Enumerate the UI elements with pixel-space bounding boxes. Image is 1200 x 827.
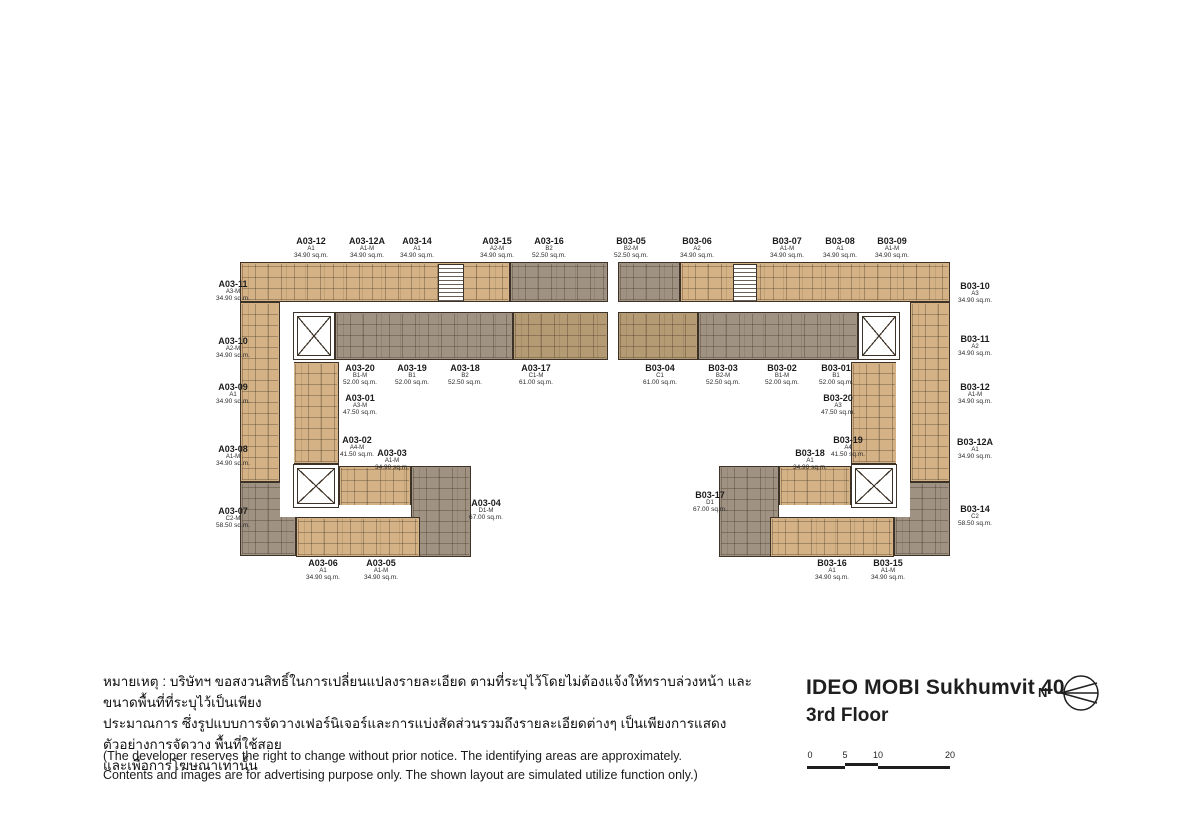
scale-segment (845, 763, 878, 766)
unit-id: A03-14 (400, 236, 434, 246)
unit-area: 34.90 sq.m. (216, 295, 250, 303)
unit-area: 34.90 sq.m. (770, 252, 804, 260)
unit-label-B03-02: B03-02B1-M52.00 sq.m. (765, 363, 799, 387)
unit-label-A03-12: A03-12A134.90 sq.m. (294, 236, 328, 260)
unit-label-B03-07: B03-07A1-M34.90 sq.m. (770, 236, 804, 260)
unit-area: 34.90 sq.m. (871, 574, 905, 582)
unit-label-A03-15: A03-15A2-M34.90 sq.m. (480, 236, 514, 260)
unit-id: B03-05 (614, 236, 648, 246)
unit-label-B03-11: B03-11A234.90 sq.m. (958, 334, 992, 358)
unit-area: 41.50 sq.m. (831, 451, 865, 459)
unit-id: A03-03 (375, 448, 409, 458)
unit-label-B03-01: B03-01B152.00 sq.m. (819, 363, 853, 387)
unit-id: B03-06 (680, 236, 714, 246)
unit-label-B03-04: B03-04C161.00 sq.m. (643, 363, 677, 387)
unit-id: A03-20 (343, 363, 377, 373)
unit-area: 34.90 sq.m. (349, 252, 385, 260)
unit-id: A03-10 (216, 336, 250, 346)
unit-id: A03-05 (364, 558, 398, 568)
unit-area: 34.90 sq.m. (823, 252, 857, 260)
floorplan-page: { "title": { "project": "IDEO MOBI Sukhu… (0, 0, 1200, 827)
unit-id: B03-12 (958, 382, 992, 392)
unit-label-A03-16: A03-16B252.50 sq.m. (532, 236, 566, 260)
unit-label-B03-18: B03-18A134.90 sq.m. (793, 448, 827, 472)
unit-area: 52.50 sq.m. (614, 252, 648, 260)
unit-label-A03-07: A03-07C2-M58.50 sq.m. (216, 506, 250, 530)
scale-segment (878, 766, 950, 769)
unit-id: A03-02 (340, 435, 374, 445)
unit-id: B03-17 (693, 490, 727, 500)
unit-area: 52.50 sq.m. (706, 379, 740, 387)
scale-tick: 20 (945, 750, 955, 760)
unit-label-A03-14: A03-14A134.90 sq.m. (400, 236, 434, 260)
unit-label-B03-15: B03-15A1-M34.90 sq.m. (871, 558, 905, 582)
unit-id: A03-17 (519, 363, 553, 373)
floor-plan-canvas: A03-12A134.90 sq.m.A03-12AA1-M34.90 sq.m… (0, 0, 1200, 827)
unit-area: 61.00 sq.m. (643, 379, 677, 387)
unit-id: B03-07 (770, 236, 804, 246)
unit-label-A03-11: A03-11A3-M34.90 sq.m. (216, 279, 250, 303)
unit-label-A03-02: A03-02A4-M41.50 sq.m. (340, 435, 374, 459)
unit-label-A03-17: A03-17C1-M61.00 sq.m. (519, 363, 553, 387)
unit-label-A03-10: A03-10A2-M34.90 sq.m. (216, 336, 250, 360)
unit-area: 41.50 sq.m. (340, 451, 374, 459)
unit-label-B03-14: B03-14C258.50 sq.m. (958, 504, 992, 528)
unit-area: 34.90 sq.m. (294, 252, 328, 260)
unit-area: 34.90 sq.m. (216, 460, 250, 468)
unit-area: 34.90 sq.m. (957, 453, 993, 461)
unit-label-B03-17: B03-17D167.00 sq.m. (693, 490, 727, 514)
floor-title: 3rd Floor (806, 705, 1065, 727)
unit-id: A03-12 (294, 236, 328, 246)
unit-id: A03-01 (343, 393, 377, 403)
unit-id: B03-15 (871, 558, 905, 568)
unit-label-A03-18: A03-18B252.50 sq.m. (448, 363, 482, 387)
unit-area: 34.90 sq.m. (216, 352, 250, 360)
unit-label-B03-05: B03-05B2-M52.50 sq.m. (614, 236, 648, 260)
unit-area: 34.90 sq.m. (400, 252, 434, 260)
unit-id: B03-04 (643, 363, 677, 373)
unit-label-A03-03: A03-03A1-M34.90 sq.m. (375, 448, 409, 472)
unit-label-B03-20: B03-20A347.50 sq.m. (821, 393, 855, 417)
unit-id: A03-19 (395, 363, 429, 373)
unit-area: 52.00 sq.m. (819, 379, 853, 387)
unit-area: 34.90 sq.m. (793, 464, 827, 472)
english-disclaimer: (The developer reserves the right to cha… (103, 747, 723, 785)
unit-area: 52.50 sq.m. (532, 252, 566, 260)
unit-id: B03-18 (793, 448, 827, 458)
scale-tick: 5 (842, 750, 847, 760)
unit-id: B03-01 (819, 363, 853, 373)
unit-area: 67.00 sq.m. (693, 506, 727, 514)
unit-id: A03-08 (216, 444, 250, 454)
unit-id: A03-11 (216, 279, 250, 289)
unit-area: 52.50 sq.m. (448, 379, 482, 387)
unit-id: A03-15 (480, 236, 514, 246)
title-block: IDEO MOBI Sukhumvit 40 3rd Floor (806, 676, 1065, 727)
north-compass: N (1036, 670, 1106, 718)
unit-area: 52.00 sq.m. (343, 379, 377, 387)
unit-id: B03-12A (957, 437, 993, 447)
unit-id: B03-02 (765, 363, 799, 373)
unit-id: B03-16 (815, 558, 849, 568)
scale-segment (807, 766, 845, 769)
unit-area: 58.50 sq.m. (958, 520, 992, 528)
unit-id: B03-14 (958, 504, 992, 514)
north-compass-icon (1054, 670, 1104, 718)
unit-id: A03-12A (349, 236, 385, 246)
unit-area: 58.50 sq.m. (216, 522, 250, 530)
unit-id: A03-06 (306, 558, 340, 568)
unit-label-A03-12A: A03-12AA1-M34.90 sq.m. (349, 236, 385, 260)
unit-area: 34.90 sq.m. (958, 297, 992, 305)
unit-area: 34.90 sq.m. (815, 574, 849, 582)
unit-id: A03-04 (469, 498, 503, 508)
unit-label-B03-10: B03-10A334.90 sq.m. (958, 281, 992, 305)
unit-id: B03-09 (875, 236, 909, 246)
unit-label-B03-16: B03-16A134.90 sq.m. (815, 558, 849, 582)
unit-label-B03-08: B03-08A134.90 sq.m. (823, 236, 857, 260)
scale-bar: 0 5 10 20 (807, 750, 957, 772)
unit-area: 34.90 sq.m. (306, 574, 340, 582)
unit-area: 61.00 sq.m. (519, 379, 553, 387)
unit-label-B03-19: B03-19A441.50 sq.m. (831, 435, 865, 459)
unit-area: 34.90 sq.m. (875, 252, 909, 260)
unit-id: A03-18 (448, 363, 482, 373)
unit-id: B03-11 (958, 334, 992, 344)
unit-label-B03-03: B03-03B2-M52.50 sq.m. (706, 363, 740, 387)
project-title: IDEO MOBI Sukhumvit 40 (806, 676, 1065, 700)
unit-area: 34.90 sq.m. (364, 574, 398, 582)
north-label: N (1038, 685, 1047, 700)
unit-label-A03-09: A03-09A134.90 sq.m. (216, 382, 250, 406)
unit-label-A03-20: A03-20B1-M52.00 sq.m. (343, 363, 377, 387)
unit-id: B03-10 (958, 281, 992, 291)
unit-area: 47.50 sq.m. (821, 409, 855, 417)
unit-area: 52.00 sq.m. (765, 379, 799, 387)
unit-area: 67.00 sq.m. (469, 514, 503, 522)
unit-label-A03-04: A03-04D1-M67.00 sq.m. (469, 498, 503, 522)
unit-id: B03-20 (821, 393, 855, 403)
unit-id: A03-07 (216, 506, 250, 516)
unit-area: 34.90 sq.m. (958, 398, 992, 406)
unit-area: 34.90 sq.m. (680, 252, 714, 260)
unit-area: 34.90 sq.m. (480, 252, 514, 260)
unit-label-B03-12: B03-12A1-M34.90 sq.m. (958, 382, 992, 406)
unit-label-A03-05: A03-05A1-M34.90 sq.m. (364, 558, 398, 582)
unit-label-A03-06: A03-06A134.90 sq.m. (306, 558, 340, 582)
unit-area: 34.90 sq.m. (216, 398, 250, 406)
unit-area: 52.00 sq.m. (395, 379, 429, 387)
unit-id: A03-16 (532, 236, 566, 246)
unit-area: 34.90 sq.m. (375, 464, 409, 472)
note-line: (The developer reserves the right to cha… (103, 747, 723, 766)
note-line: Contents and images are for advertising … (103, 766, 723, 785)
unit-id: A03-09 (216, 382, 250, 392)
unit-label-B03-06: B03-06A234.90 sq.m. (680, 236, 714, 260)
unit-id: B03-08 (823, 236, 857, 246)
unit-label-A03-19: A03-19B152.00 sq.m. (395, 363, 429, 387)
unit-id: B03-19 (831, 435, 865, 445)
note-line: หมายเหตุ : บริษัทฯ ขอสงวนสิทธิ์ในการเปลี… (103, 671, 753, 713)
unit-label-A03-01: A03-01A3-M47.50 sq.m. (343, 393, 377, 417)
unit-id: B03-03 (706, 363, 740, 373)
unit-label-B03-12A: B03-12AA134.90 sq.m. (957, 437, 993, 461)
unit-label-A03-08: A03-08A1-M34.90 sq.m. (216, 444, 250, 468)
unit-area: 34.90 sq.m. (958, 350, 992, 358)
unit-label-B03-09: B03-09A1-M34.90 sq.m. (875, 236, 909, 260)
unit-area: 47.50 sq.m. (343, 409, 377, 417)
scale-tick: 0 (807, 750, 812, 760)
scale-tick: 10 (873, 750, 883, 760)
